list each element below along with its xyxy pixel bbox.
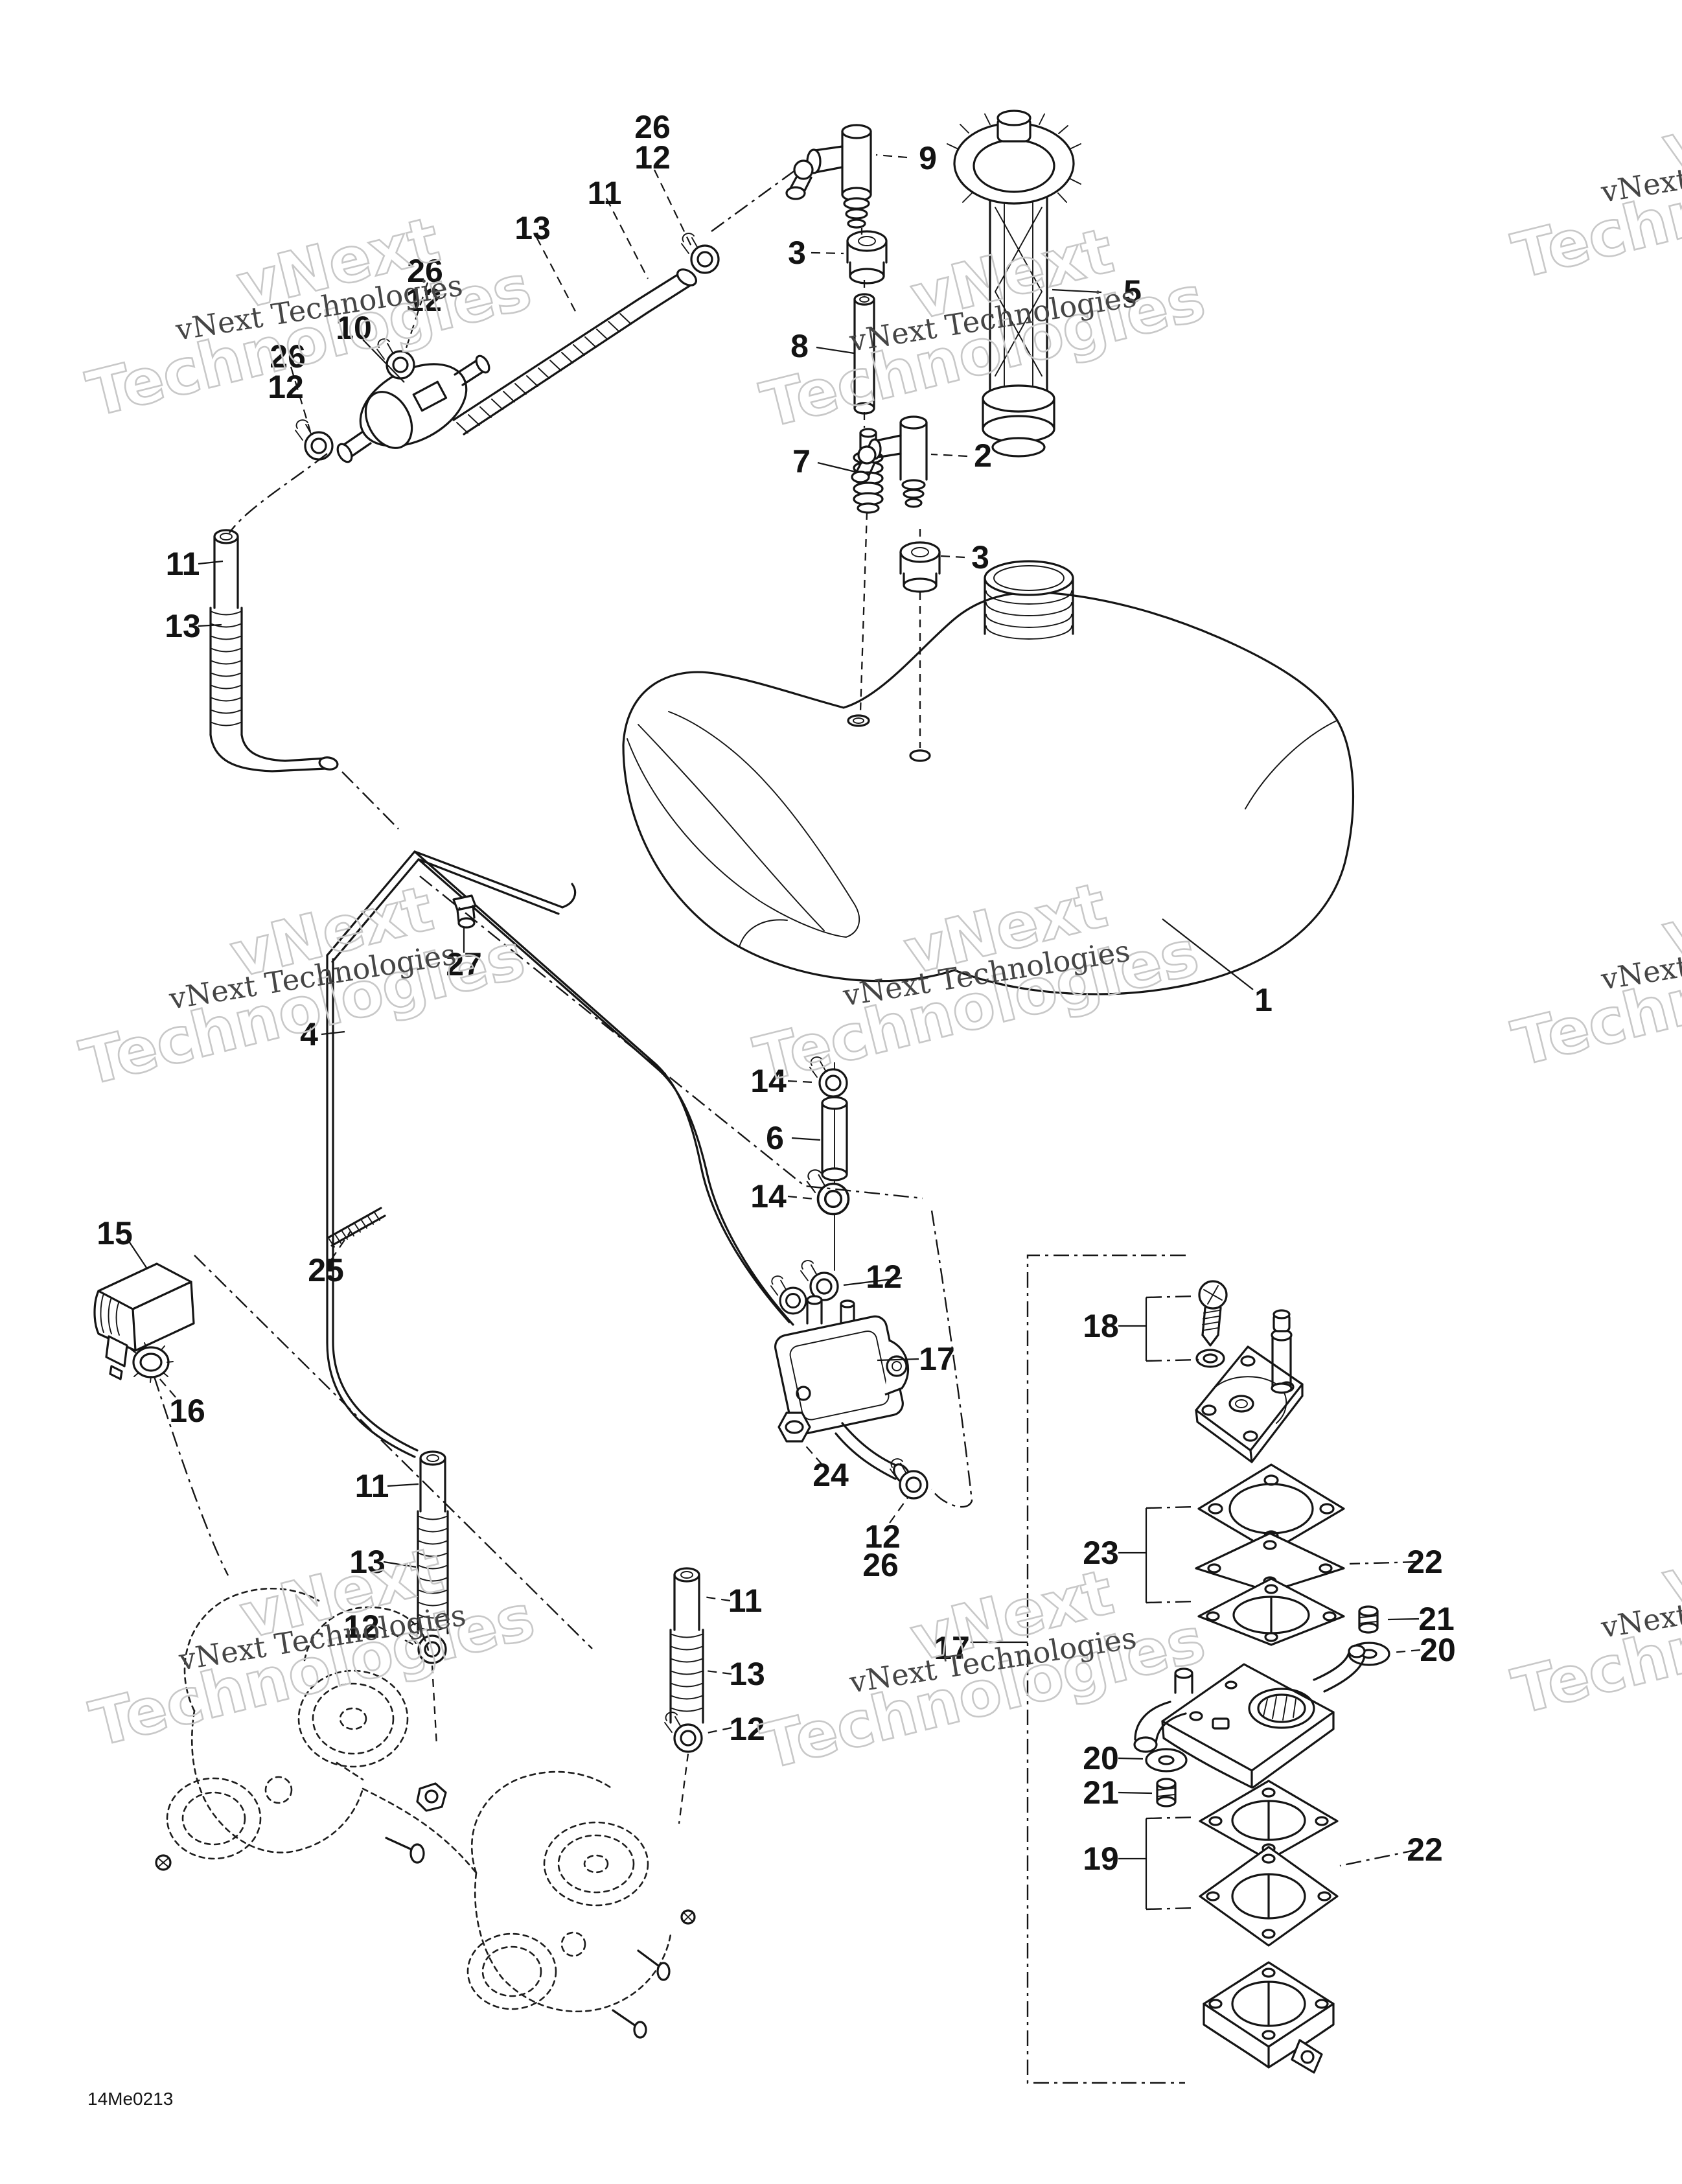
watermark-text: Technologies [1506,1548,1682,1728]
pump-kit-gaskets-23 [1196,1465,1344,1645]
callout-label-18: 18 [1083,1308,1119,1344]
washer-20-lower [1146,1749,1186,1771]
callout-label-25: 25 [308,1252,344,1288]
callout-label-11: 11 [728,1583,763,1619]
pump-kit-screw-18 [1197,1281,1227,1367]
callout-label-6: 6 [766,1120,784,1156]
callout-label-12: 12 [634,139,671,176]
pump-kit-cover-plate [1196,1310,1302,1462]
grommet-3-lower [901,542,939,592]
callout-label-22: 22 [1407,1544,1443,1580]
callout-label-3: 3 [788,235,806,271]
callout-label-7: 7 [792,443,811,480]
watermark: vNextTechnologiesvNext Technologies [84,1533,541,1761]
callout-label-2: 2 [974,437,992,474]
callout-label-12: 12 [866,1259,902,1295]
callout-label-15: 15 [97,1215,133,1251]
callout-label-22: 22 [1407,1831,1443,1868]
callout-label-17: 17 [919,1341,955,1377]
callout-label-13: 13 [514,210,551,246]
watermark: vNextTechnologiesvNext Technologies [80,203,538,431]
callout-label-20: 20 [1083,1740,1119,1776]
left-hose-11-13 [211,530,338,771]
pump-kit-gaskets-19 [1200,1781,1337,1946]
diagram-code: 14Me0213 [87,2089,173,2109]
callout-label-13: 13 [165,608,201,644]
watermark: vNextTechnologiesvNext Technologies [1506,65,1682,293]
watermark-text: Technologies [1506,113,1682,293]
callout-label-11: 11 [588,175,622,211]
clamp-12-pump-a [801,1260,838,1300]
pump-base-flange [1204,1962,1333,2073]
watermark: vNextTechnologiesvNext Technologies [1506,852,1682,1080]
spring-25 [328,1208,385,1247]
carb-hose-right-11-13 [671,1568,703,1723]
exploded-parts-diagram: 14Me0213 2612911133261210582612723111327… [0,0,1682,2184]
vent-fitting-9 [787,125,871,227]
valve-21-lower [1157,1779,1175,1806]
callout-label-13: 13 [729,1656,765,1692]
callout-label-24: 24 [812,1457,849,1493]
carburetor-right [468,1772,695,2038]
callout-label-16: 16 [169,1393,205,1429]
callout-label-20: 20 [1420,1632,1456,1668]
clip-27 [454,896,476,927]
callout-label-3: 3 [971,539,989,575]
callout-label-21: 21 [1083,1774,1119,1811]
callout-label-14: 14 [750,1178,787,1214]
clamp-12-top [682,233,719,273]
nut-24 [779,1413,810,1441]
parts-diagram-page: 14Me0213 2612911133261210582612723111327… [0,0,1682,2184]
valve-21-upper [1359,1607,1377,1632]
callout-label-9: 9 [919,140,937,176]
watermark: vNextTechnologiesvNext Technologies [1506,1500,1682,1728]
grommet-3-top [847,231,886,283]
callout-label-11: 11 [166,546,200,582]
watermark-text: Technologies [1506,900,1682,1080]
callout-label-11: 11 [355,1468,389,1504]
callout-label-1: 1 [1254,982,1273,1018]
callout-label-26: 26 [862,1547,899,1583]
callout-label-19: 19 [1083,1841,1119,1877]
